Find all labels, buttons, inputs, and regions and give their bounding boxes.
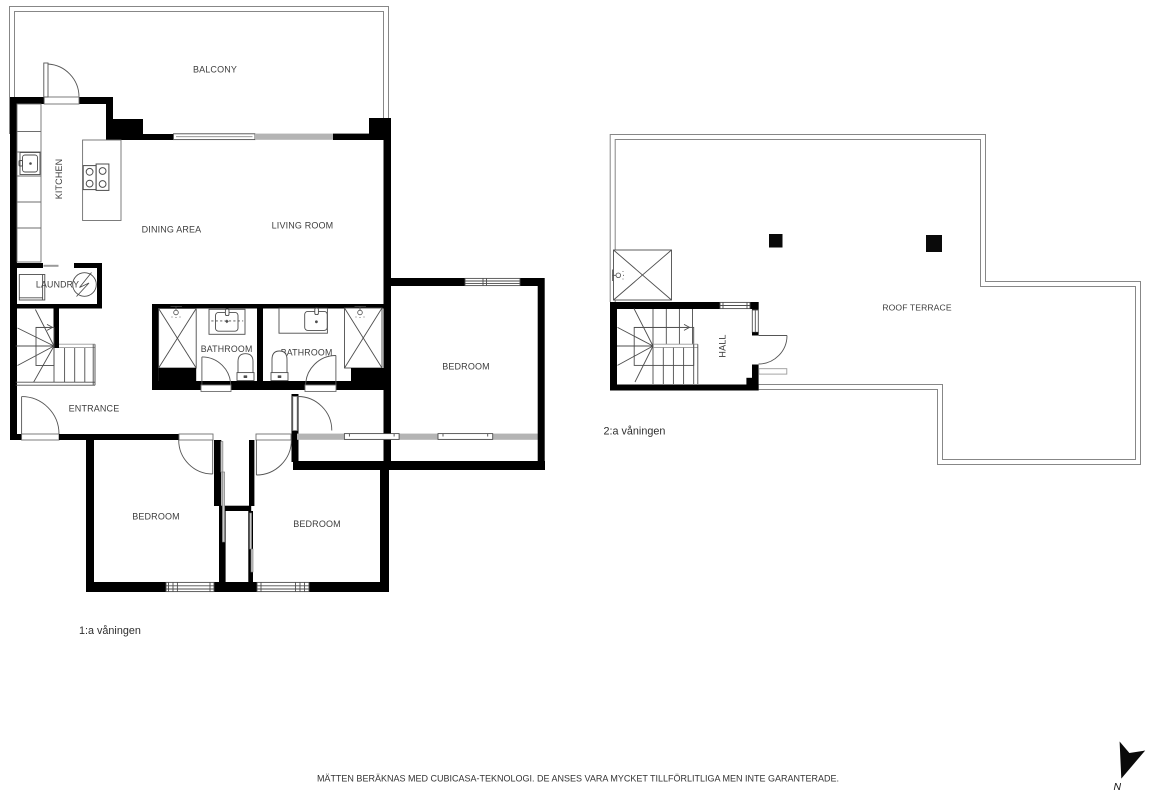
svg-text:LAUNDRY: LAUNDRY [36, 280, 79, 290]
svg-text:N: N [1114, 781, 1122, 793]
svg-text:KITCHEN: KITCHEN [54, 159, 64, 200]
svg-text:ENTRANCE: ENTRANCE [69, 404, 120, 414]
svg-text:MÄTTEN BERÄKNAS MED CUBICASA-T: MÄTTEN BERÄKNAS MED CUBICASA-TEKNOLOGI. … [317, 774, 839, 784]
svg-text:DINING AREA: DINING AREA [142, 225, 202, 235]
svg-text:BATHROOM: BATHROOM [201, 344, 253, 354]
svg-text:BATHROOM: BATHROOM [281, 348, 333, 358]
svg-text:BEDROOM: BEDROOM [442, 362, 490, 372]
svg-text:HALL: HALL [718, 334, 728, 357]
svg-text:BEDROOM: BEDROOM [132, 512, 180, 522]
svg-text:1:a våningen: 1:a våningen [79, 625, 141, 637]
svg-text:ROOF TERRACE: ROOF TERRACE [882, 303, 951, 313]
svg-text:BEDROOM: BEDROOM [293, 519, 341, 529]
svg-text:2:a våningen: 2:a våningen [604, 426, 666, 438]
svg-text:BALCONY: BALCONY [193, 65, 237, 75]
svg-text:LIVING ROOM: LIVING ROOM [272, 221, 334, 231]
